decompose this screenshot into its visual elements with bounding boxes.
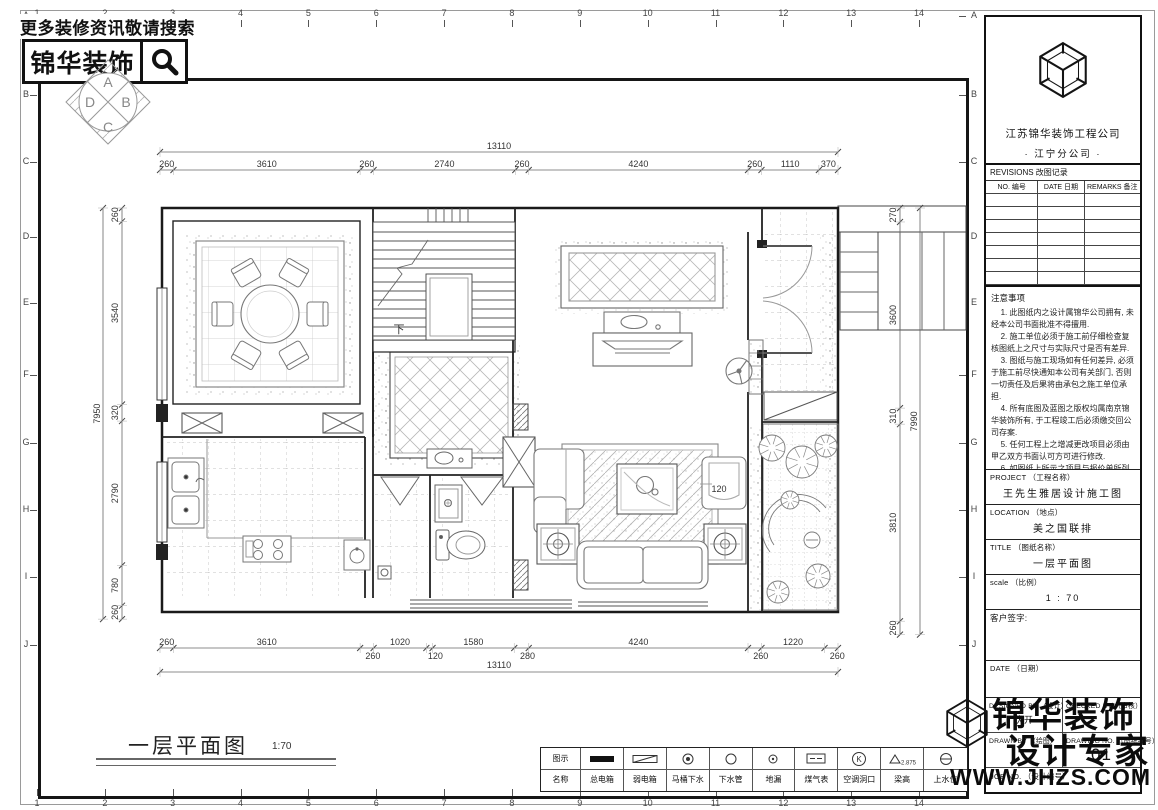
staircase [373, 208, 515, 340]
svg-text:C: C [103, 119, 113, 135]
weak-power-box-icon [624, 748, 666, 770]
revisions-empty-cell [1085, 233, 1140, 246]
project-value: 王先生雅居设计施工图 [990, 483, 1136, 502]
project-field: PROJECT （工程名称） 王先生雅居设计施工图 [986, 469, 1140, 504]
dim-total-label: 7950 [92, 404, 102, 424]
dim-label: 4240 [628, 637, 648, 647]
designed-by-value: 伏开 [989, 713, 1059, 726]
legend-item-label: 总电箱 [581, 770, 623, 789]
caption-underline-2 [96, 765, 336, 766]
caption-underline [96, 758, 336, 760]
revisions-empty-cell [1038, 194, 1084, 207]
revisions-empty-row [986, 246, 1140, 259]
legend-item-label: 煤气表 [795, 770, 837, 789]
stairs-down-label: 下 [394, 324, 405, 336]
dining-chair [307, 302, 328, 326]
revisions-header-row: NO. 编号DATE 日期REMARKS 备注 [986, 181, 1140, 194]
legend-item: 地漏 [753, 748, 796, 791]
date-label: DATE （日期） [990, 663, 1136, 674]
legend-item: 2.875梁高 [881, 748, 924, 791]
checked-by-label: CHECKED BY （审核） [1066, 703, 1142, 710]
scale-label: scale （比例） [990, 577, 1136, 588]
revisions-empty-cell [986, 246, 1038, 259]
dim-label: 3600 [888, 305, 898, 325]
plan-caption: 一层平面图 [128, 730, 248, 760]
dim-label: 260 [159, 159, 174, 169]
scale-field: scale （比例） 1 : 70 [986, 574, 1140, 609]
revisions-empty-row [986, 272, 1140, 285]
revisions-title: REVISIONS 改图记录 [986, 163, 1140, 180]
location-value: 美之国联排 [990, 518, 1136, 537]
note-item: 3. 图纸与施工现场如有任何差异, 必须于施工前尽快通知本公司有关部门, 否则一… [991, 355, 1135, 403]
water-supply-icon [924, 748, 967, 770]
dim-label: 280 [520, 651, 535, 661]
legend-item: 煤气表 [795, 748, 838, 791]
revisions-empty-row [986, 194, 1140, 207]
revisions-empty-cell [1038, 272, 1084, 285]
dim-label: 260 [159, 637, 174, 647]
legend-item: 马桶下水 [667, 748, 710, 791]
legend-item: 弱电箱 [624, 748, 667, 791]
legend-item: 总电箱 [581, 748, 624, 791]
compass-logo: A B C D [63, 57, 153, 147]
revisions-empty-cell [1038, 220, 1084, 233]
legend-item-label: 上水位 [924, 770, 967, 789]
revisions-empty-cell [1085, 194, 1140, 207]
revisions-empty-row [986, 233, 1140, 246]
legend-item: 下水管 [710, 748, 753, 791]
plant-symbol [815, 435, 837, 457]
drawing-no-value: 01 [1066, 745, 1137, 765]
dim-label: 370 [821, 159, 836, 169]
drain-pipe-icon [710, 748, 752, 770]
dim-label: 260 [359, 159, 374, 169]
revisions-empty-cell [986, 194, 1038, 207]
plan-caption-scale: 1:70 [272, 741, 291, 752]
location-label: LOCATION （地点） [990, 507, 1136, 518]
notes-section: 注意事项 1. 此图纸内之设计属锦华公司拥有, 未经本公司书面批准不得擅用.2.… [986, 285, 1140, 469]
project-label: PROJECT （工程名称） [990, 472, 1136, 483]
signature-grid: DESIGNED BY （设计） 伏开 CHECKED BY （审核） DRAW… [986, 697, 1140, 792]
legend-row2-label: 名称 [541, 770, 580, 789]
legend-row1-label: 图示 [541, 748, 580, 770]
client-sign-label: 客户签字: [990, 612, 1136, 624]
date-field: DATE （日期） [986, 660, 1140, 697]
dim-label: 260 [830, 651, 845, 661]
revisions-empty-cell [1038, 246, 1084, 259]
gas-meter-icon [795, 748, 837, 770]
plant-symbol [786, 446, 818, 478]
notes-title: 注意事项 [991, 292, 1135, 304]
svg-text:D: D [85, 94, 95, 110]
drawing-no-cell: DRAWING NO. （图纸编号） 01 [1063, 733, 1140, 767]
job-no-label: JOB NO. （设计编号） [990, 772, 1070, 781]
dim-label: 4240 [628, 159, 648, 169]
company-cube-logo [986, 17, 1140, 123]
dim-label: 2790 [110, 483, 120, 503]
dim-label: 260 [514, 159, 529, 169]
revisions-header-cell: REMARKS 备注 [1085, 181, 1140, 194]
exterior-steps [838, 206, 966, 330]
dim-label: 260 [753, 651, 768, 661]
sheet-title-value: 一层平面图 [990, 553, 1136, 572]
dim-label: 260 [747, 159, 762, 169]
title-block: 江苏锦华装饰工程公司 · 江宁分公司 · REVISIONS 改图记录 NO. … [984, 15, 1142, 794]
drawing-no-label: DRAWING NO. （图纸编号） [1066, 738, 1158, 745]
legend-bar: 图示名称总电箱弱电箱马桶下水下水管地漏煤气表K空调洞口2.875梁高上水位 [540, 747, 968, 792]
legend-header-col: 图示名称 [541, 748, 581, 791]
svg-text:2.875: 2.875 [901, 760, 916, 766]
dim-total-label: 7990 [909, 411, 919, 431]
plant-symbol [759, 435, 785, 461]
dim-label: 1220 [783, 637, 803, 647]
dining-chair [212, 302, 233, 326]
dim-label: 3810 [888, 513, 898, 533]
designed-by-label: DESIGNED BY （设计） [989, 703, 1068, 710]
dim-label: 310 [888, 409, 898, 424]
revisions-empty-cell [1085, 246, 1140, 259]
revisions-header-cell: DATE 日期 [1038, 181, 1084, 194]
dim-label: 120 [428, 651, 443, 661]
dim-label: 260 [888, 620, 898, 635]
revisions-empty-cell [986, 259, 1038, 272]
drawn-by-cell: DRAWN BY （绘图） [986, 733, 1063, 767]
sheet-title-field: TITLE （图纸名称） 一层平面图 [986, 539, 1140, 574]
revisions-empty-cell [986, 233, 1038, 246]
revisions-empty-cell [1038, 207, 1084, 220]
dim-label: 1020 [390, 637, 410, 647]
legend-item-label: 地漏 [753, 770, 795, 789]
legend-item-label: 梁高 [881, 770, 923, 789]
search-tagline: 更多装修资讯敬请搜索 [20, 14, 220, 39]
floor-drain-icon [753, 748, 795, 770]
legend-item: 上水位 [924, 748, 967, 791]
revisions-empty-cell [986, 220, 1038, 233]
main-power-box-icon [581, 748, 623, 770]
revisions-empty-cell [1038, 233, 1084, 246]
svg-text:B: B [121, 94, 130, 110]
dim-label: 3610 [257, 159, 277, 169]
revisions-empty-cell [1085, 272, 1140, 285]
plant-symbol [781, 491, 799, 509]
revisions-header-cell: NO. 编号 [986, 181, 1038, 194]
legend-item-label: 空调洞口 [838, 770, 880, 789]
note-item: 4. 所有底图及蓝图之版权均属南京锦华装饰所有, 于工程竣工后必须缴交回公司存案… [991, 403, 1135, 439]
dim-label: 3610 [257, 637, 277, 647]
note-item: 2. 施工单位必须于施工前仔细检查复核图纸上之尺寸与实际尺寸是否有差异. [991, 331, 1135, 355]
dim-label: 260 [110, 207, 120, 222]
note-item: 1. 此图纸内之设计属锦华公司拥有, 未经本公司书面批准不得擅用. [991, 307, 1135, 331]
scale-value: 1 : 70 [990, 588, 1136, 607]
dim-total-label: 13110 [487, 660, 511, 670]
dim-label: 780 [110, 578, 120, 593]
company-branch: · 江宁分公司 · [986, 143, 1140, 163]
revisions-empty-cell [1085, 259, 1140, 272]
revisions-empty-cell [986, 207, 1038, 220]
dim-label: 1110 [781, 159, 800, 169]
svg-text:K: K [857, 755, 863, 764]
revisions-table: NO. 编号DATE 日期REMARKS 备注 [986, 180, 1140, 285]
designed-by-cell: DESIGNED BY （设计） 伏开 [986, 698, 1063, 732]
company-name: 江苏锦华装饰工程公司 [986, 123, 1140, 143]
dim-label: 260 [110, 605, 120, 620]
note-item: 5. 任何工程上之增减更改项目必须由甲乙双方书面认可方可进行修改. [991, 439, 1135, 463]
legend-item: K空调洞口 [838, 748, 881, 791]
checked-by-cell: CHECKED BY （审核） [1063, 698, 1140, 732]
svg-text:A: A [103, 74, 113, 90]
sheet-title-label: TITLE （图纸名称） [990, 542, 1136, 553]
revisions-empty-cell [986, 272, 1038, 285]
job-no-cell: JOB NO. （设计编号） [986, 768, 1140, 792]
revisions-empty-row [986, 207, 1140, 220]
dim-label: 260 [365, 651, 380, 661]
revisions-empty-row [986, 259, 1140, 272]
dim-label: 3540 [110, 303, 120, 323]
plant-symbol [806, 564, 830, 588]
drawn-by-label: DRAWN BY （绘图） [989, 738, 1057, 745]
revisions-empty-cell [1038, 259, 1084, 272]
legend-item-label: 弱电箱 [624, 770, 666, 789]
notes-list: 1. 此图纸内之设计属锦华公司拥有, 未经本公司书面批准不得擅用.2. 施工单位… [991, 307, 1135, 469]
garden-dim-label: 120 [711, 484, 726, 494]
revisions-empty-row [986, 220, 1140, 233]
ac-opening-icon: K [838, 748, 880, 770]
dim-label: 1580 [463, 637, 483, 647]
dim-label: 270 [888, 207, 898, 222]
legend-item-label: 马桶下水 [667, 770, 709, 789]
toilet-drain-icon [667, 748, 709, 770]
revisions-empty-cell [1085, 207, 1140, 220]
legend-item-label: 下水管 [710, 770, 752, 789]
client-sign-field: 客户签字: [986, 609, 1140, 660]
beam-height-icon: 2.875 [881, 748, 923, 770]
location-field: LOCATION （地点） 美之国联排 [986, 504, 1140, 539]
dim-total-label: 13110 [487, 141, 511, 151]
drawing-sheet: 11223344556677889910101111121213131414AA… [0, 0, 1158, 810]
revisions-empty-cell [1085, 220, 1140, 233]
dim-label: 320 [110, 405, 120, 420]
dim-label: 2740 [434, 159, 454, 169]
plant-symbol [767, 581, 789, 603]
